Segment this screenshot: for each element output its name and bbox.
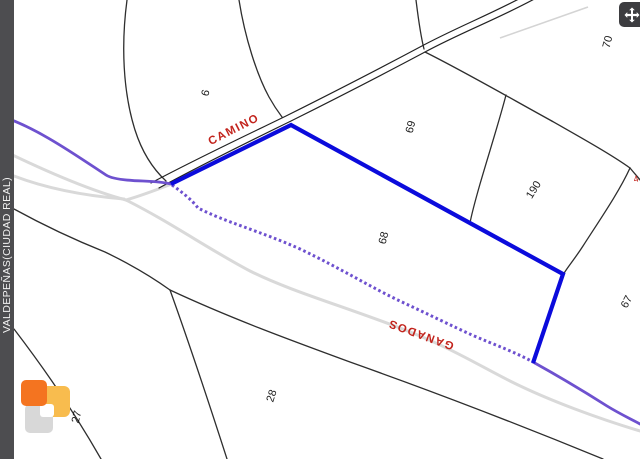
road-faint-topright (500, 7, 588, 38)
route-purple-dotted (172, 185, 533, 362)
logo-square-orange (21, 380, 47, 406)
cadastral-map-viewer: 6696819070672827CAMINOGANADOS4 VALDEPEÑA… (0, 0, 640, 459)
boundary-parcel69-top (416, 0, 424, 49)
boundary-parcel6-right (239, 0, 282, 117)
boundary-right-edge-spur (630, 168, 640, 181)
boundary-parcel6-left (124, 0, 166, 181)
boundary-parcel70 (425, 52, 630, 168)
road-ganados-gray (0, 149, 640, 431)
boundary-parcel69-190 (470, 95, 506, 223)
route-purple-left (0, 116, 171, 184)
pan-tool-button[interactable] (619, 2, 640, 27)
region-ribbon-label: VALDEPEÑAS(CIUDAD REAL) (1, 177, 13, 333)
boundary-parcel27-28 (170, 290, 227, 459)
boundary-lowerleft-upper (14, 209, 170, 290)
selected-parcel-outline (171, 125, 563, 363)
road-gray-spur-junction (126, 185, 169, 200)
region-ribbon: VALDEPEÑAS(CIUDAD REAL) (0, 0, 14, 459)
move-arrows-icon (624, 7, 640, 23)
boundary-parcel28-top (170, 290, 603, 459)
parcel-map-canvas[interactable] (0, 0, 640, 459)
boundary-parcel190-67 (563, 168, 630, 275)
